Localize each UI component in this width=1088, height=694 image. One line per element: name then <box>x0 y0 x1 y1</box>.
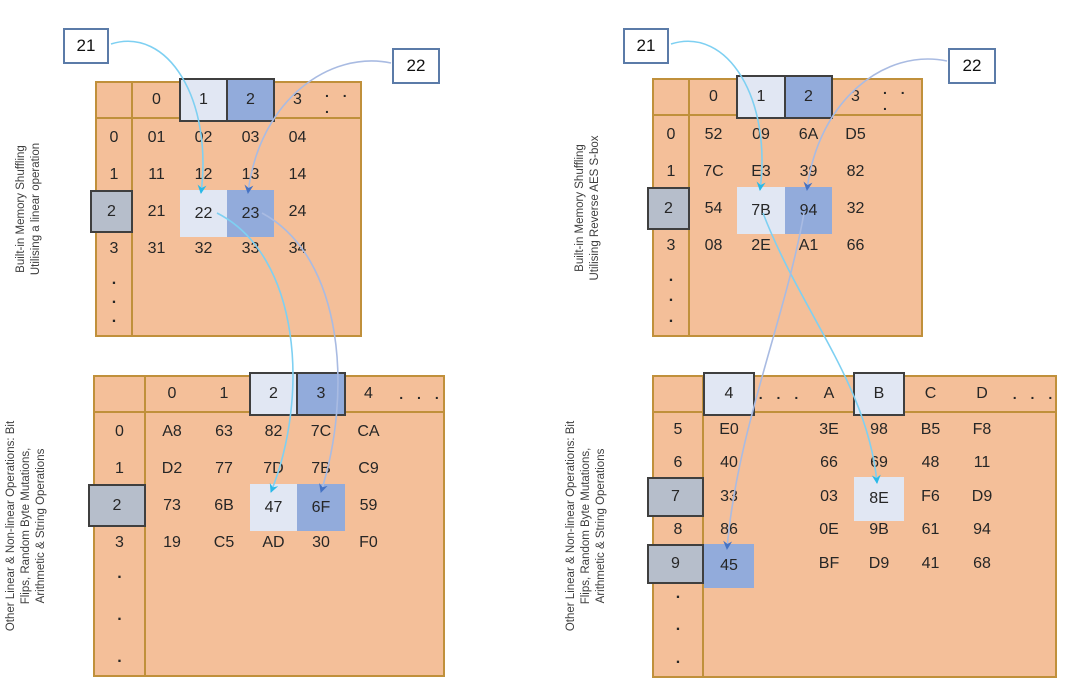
data-cell: D5 <box>832 116 879 153</box>
table-row: 0A863827CCA <box>95 413 443 450</box>
data-cell-text: 32 <box>195 240 213 258</box>
highlighted-col-header: 2 <box>249 372 298 416</box>
ellipsis-dot: . <box>112 296 116 302</box>
data-cell: 52 <box>690 116 737 153</box>
data-cell <box>392 487 447 524</box>
data-cell: 6A <box>785 116 832 153</box>
col-header-2: 2 <box>227 83 274 117</box>
table-row: 052096AD5 <box>654 116 921 153</box>
data-cell: 66 <box>832 227 879 264</box>
row-label-3: 3 <box>95 524 146 561</box>
data-cell: D9 <box>957 480 1007 514</box>
header-row: 01234. . . <box>95 377 443 413</box>
data-cell-text: 48 <box>922 454 940 472</box>
ellipsis-column: ... <box>95 561 146 675</box>
data-cell: D2 <box>146 450 198 487</box>
caption-line: Utilising Reverse AES S-box <box>588 135 603 280</box>
data-cell: E0 <box>704 413 754 447</box>
highlighted-col-header: 2 <box>784 75 833 119</box>
row-label-text: 5 <box>674 421 683 439</box>
callout-box-21: 21 <box>63 28 109 64</box>
data-cell: F0 <box>345 524 392 561</box>
data-cell: 73 <box>146 487 198 524</box>
data-cell: 22 <box>180 193 227 230</box>
data-cell: 7B <box>297 450 345 487</box>
row-label-1: 1 <box>95 450 146 487</box>
highlighted-col-header: B <box>853 372 905 416</box>
row-label-0: 0 <box>654 116 690 153</box>
data-cell: A8 <box>146 413 198 450</box>
col-header-label: A <box>824 385 835 403</box>
data-cell: 94 <box>785 190 832 227</box>
bottom-table-reverse-aes-sbox: 4. . .ABCD. . .5E03E98B5F864066694811733… <box>652 375 1057 678</box>
ellipsis-dot: . <box>669 294 673 300</box>
col-header-label: . . . <box>879 81 925 113</box>
highlighted-row-label: 7 <box>647 477 704 517</box>
row-label-text: 3 <box>667 237 676 255</box>
data-cell-text: 19 <box>163 534 181 552</box>
col-header-label: 4 <box>364 385 373 403</box>
caption-line: Flips, Random Byte Mutations, <box>579 421 594 631</box>
data-cell <box>321 193 364 230</box>
caption-line: Other Linear & Non-linear Operations: Bi… <box>4 421 19 631</box>
row-label-1: 1 <box>654 153 690 190</box>
row-label-0: 0 <box>95 413 146 450</box>
data-cell <box>321 230 364 267</box>
data-cell-text: F6 <box>921 488 940 506</box>
data-cell: 82 <box>250 413 297 450</box>
col-header-3: 3 <box>274 83 321 117</box>
col-header-B: B <box>854 377 904 411</box>
data-cell: BF <box>804 547 854 581</box>
data-cell-text: 02 <box>195 129 213 147</box>
data-cell-text: D5 <box>845 126 865 144</box>
data-cell-text: 7C <box>311 423 331 441</box>
data-cell: 7C <box>690 153 737 190</box>
callout-box-22: 22 <box>392 48 440 84</box>
data-cell: 7B <box>737 190 785 227</box>
row-label-2: 2 <box>95 487 146 524</box>
data-cell-text: 01 <box>148 129 166 147</box>
data-cell: 02 <box>180 119 227 156</box>
ellipsis-rows: ... <box>654 581 1055 677</box>
highlighted-data-cell: 8E <box>854 477 904 521</box>
data-cell-text: F8 <box>973 421 992 439</box>
table-row: 64066694811 <box>654 447 1055 481</box>
col-header-0: 0 <box>146 377 198 411</box>
data-cell <box>879 227 925 264</box>
data-cell-text: 31 <box>148 240 166 258</box>
data-cell-text: 82 <box>265 423 283 441</box>
callout-box-21: 21 <box>623 28 669 64</box>
col-header-label: 0 <box>152 91 161 109</box>
data-cell-text: 52 <box>705 126 723 144</box>
col-header-0: 0 <box>690 80 737 114</box>
data-cell-text: 7C <box>703 163 723 181</box>
data-cell-text: 59 <box>360 497 378 515</box>
data-cell-text: 66 <box>820 454 838 472</box>
highlighted-data-cell: 22 <box>180 190 227 237</box>
data-cell: 23 <box>227 193 274 230</box>
col-header-label: 0 <box>168 385 177 403</box>
data-cell-text: 82 <box>847 163 865 181</box>
data-cell: F8 <box>957 413 1007 447</box>
data-cell: 98 <box>854 413 904 447</box>
row-label-2: 2 <box>654 190 690 227</box>
data-cell <box>1007 413 1059 447</box>
data-cell-text: D9 <box>869 555 889 573</box>
ellipsis-dot: . <box>676 591 680 597</box>
col-header-ellipsis: . . . <box>879 80 925 114</box>
highlighted-data-cell: 47 <box>250 484 297 531</box>
data-cell-text: F0 <box>359 534 378 552</box>
data-cell: 59 <box>345 487 392 524</box>
data-cell: 54 <box>690 190 737 227</box>
data-cell: B5 <box>904 413 957 447</box>
caption-line: Utilising a linear operation <box>29 143 44 275</box>
data-cell <box>1007 547 1059 581</box>
data-cell <box>879 153 925 190</box>
data-cell-text: 98 <box>870 421 888 439</box>
data-cell: 04 <box>274 119 321 156</box>
data-cell-text: 12 <box>195 166 213 184</box>
data-cell: 19 <box>146 524 198 561</box>
data-cell: 77 <box>198 450 250 487</box>
header-row: 4. . .ABCD. . . <box>654 377 1055 413</box>
data-cell: E3 <box>737 153 785 190</box>
table-row: 17CE33982 <box>654 153 921 190</box>
data-cell: 41 <box>904 547 957 581</box>
highlighted-data-cell: 45 <box>704 544 754 588</box>
data-cell: 11 <box>133 156 180 193</box>
data-cell: 47 <box>250 487 297 524</box>
data-cell-text: C9 <box>358 460 378 478</box>
data-cell-text: 11 <box>148 166 165 184</box>
data-cell-text: C5 <box>214 534 234 552</box>
data-cell-text: D9 <box>972 488 992 506</box>
data-cell: 03 <box>804 480 854 514</box>
row-label-text: 1 <box>667 163 676 181</box>
data-cell-text: 21 <box>148 203 166 221</box>
data-cell-text: A8 <box>162 423 182 441</box>
col-header-2: 2 <box>250 377 297 411</box>
highlighted-col-header: 1 <box>179 78 228 122</box>
row-label-1: 1 <box>97 156 133 193</box>
row-label-text: 1 <box>115 460 124 478</box>
data-cell-text: 34 <box>289 240 307 258</box>
data-cell-text: 9B <box>869 521 889 539</box>
data-cell: 7D <box>250 450 297 487</box>
data-cell: 68 <box>957 547 1007 581</box>
data-cell-text: 03 <box>820 488 838 506</box>
col-header-C: C <box>904 377 957 411</box>
data-cell: 08 <box>690 227 737 264</box>
row-label-5: 5 <box>654 413 704 447</box>
col-header-D: D <box>957 377 1007 411</box>
data-cell-text: AD <box>262 534 284 552</box>
data-cell: C5 <box>198 524 250 561</box>
data-cell: 82 <box>832 153 879 190</box>
data-cell: 86 <box>704 514 754 548</box>
data-cell: 01 <box>133 119 180 156</box>
data-cell-text: 09 <box>752 126 770 144</box>
data-cell <box>754 547 804 581</box>
data-cell: CA <box>345 413 392 450</box>
ellipsis-dot: . <box>676 623 680 629</box>
data-cell <box>321 156 364 193</box>
callout-box-22: 22 <box>948 48 996 84</box>
data-cell-text: BF <box>819 555 839 573</box>
ellipsis-column: ... <box>97 267 133 335</box>
corner-cell <box>654 80 690 114</box>
bottom-table-linear-operation: 01234. . .0A863827CCA1D2777D7BC92736B476… <box>93 375 445 677</box>
caption-line: Arithmetic & String Operations <box>35 421 50 631</box>
table-row: 2736B476F59 <box>95 487 443 524</box>
data-cell: 21 <box>133 193 180 230</box>
caption-linear-operation-bottom: Other Linear & Non-linear Operations: Bi… <box>4 421 50 631</box>
row-label-text: 1 <box>110 166 119 184</box>
data-cell: 13 <box>227 156 274 193</box>
data-cell <box>1007 480 1059 514</box>
col-header-label: . . . <box>321 84 364 116</box>
col-header-label: . . . <box>755 386 803 402</box>
row-label-text: 0 <box>115 423 124 441</box>
data-cell-text: 03 <box>242 129 260 147</box>
data-cell: 8E <box>854 480 904 514</box>
highlighted-row-label: 2 <box>90 190 133 233</box>
highlighted-col-header: 4 <box>703 372 755 416</box>
highlighted-row-label: 9 <box>647 544 704 584</box>
highlighted-col-header: 1 <box>736 75 786 119</box>
data-cell-text: 6A <box>799 126 819 144</box>
data-cell: 48 <box>904 447 957 481</box>
col-header-label: 3 <box>851 88 860 106</box>
header-row: 0123. . . <box>654 80 921 116</box>
col-header-3: 3 <box>832 80 879 114</box>
row-label-text: 8 <box>674 521 683 539</box>
top-table-linear-operation: 0123. . .0010203041111213142212223243313… <box>95 81 362 337</box>
highlighted-data-cell: 7B <box>737 187 785 234</box>
data-cell: 12 <box>180 156 227 193</box>
data-cell <box>392 450 447 487</box>
table-row: 001020304 <box>97 119 360 156</box>
table-row: 111121314 <box>97 156 360 193</box>
data-cell-text: 33 <box>720 488 738 506</box>
data-cell-text: 24 <box>289 203 307 221</box>
data-cell: F6 <box>904 480 957 514</box>
data-cell: 32 <box>832 190 879 227</box>
table-row: 1D2777D7BC9 <box>95 450 443 487</box>
data-cell: 3E <box>804 413 854 447</box>
highlighted-row-label: 2 <box>88 484 146 527</box>
memory-shuffling-diagram: 2122Built-in Memory ShufflingUtilising a… <box>0 0 1088 694</box>
col-header-1: 1 <box>198 377 250 411</box>
data-cell-text: E3 <box>751 163 771 181</box>
col-header-1: 1 <box>737 80 785 114</box>
caption-reverse-aes-sbox-bottom: Other Linear & Non-linear Operations: Bi… <box>564 421 610 631</box>
data-cell <box>1007 447 1059 481</box>
ellipsis-rows: ... <box>95 561 443 675</box>
data-cell: 0E <box>804 514 854 548</box>
data-cell: 40 <box>704 447 754 481</box>
row-label-text: 6 <box>674 454 683 472</box>
data-cell: 11 <box>957 447 1007 481</box>
ellipsis-rows: ... <box>654 264 921 335</box>
data-cell-text: B5 <box>921 421 941 439</box>
row-label-7: 7 <box>654 480 704 514</box>
ellipsis-dot: . <box>117 655 121 661</box>
col-header-label: . . . <box>1009 386 1057 402</box>
data-cell-text: 7B <box>311 460 331 478</box>
data-cell: 39 <box>785 153 832 190</box>
col-header-ellipsis: . . . <box>1007 377 1059 411</box>
ellipsis-column: ... <box>654 264 690 335</box>
header-row: 0123. . . <box>97 83 360 119</box>
col-header-label: C <box>925 385 937 403</box>
col-header-ellipsis: . . . <box>321 83 364 117</box>
corner-cell <box>95 377 146 411</box>
data-cell-text: 7D <box>263 460 283 478</box>
data-cell <box>754 413 804 447</box>
caption-line: Built-in Memory Shuffling <box>573 135 588 280</box>
data-cell-text: 94 <box>973 521 991 539</box>
data-cell: 66 <box>804 447 854 481</box>
col-header-1: 1 <box>180 83 227 117</box>
row-label-0: 0 <box>97 119 133 156</box>
data-cell: 69 <box>854 447 904 481</box>
col-header-0: 0 <box>133 83 180 117</box>
table-row: 5E03E98B5F8 <box>654 413 1055 447</box>
highlighted-data-cell: 94 <box>785 187 832 234</box>
data-cell: 03 <box>227 119 274 156</box>
ellipsis-dot: . <box>676 656 680 662</box>
row-label-3: 3 <box>97 230 133 267</box>
data-cell-text: 39 <box>800 163 818 181</box>
col-header-label: D <box>976 385 988 403</box>
data-cell-text: 61 <box>922 521 940 539</box>
top-table-reverse-aes-sbox: 0123. . .052096AD517CE339822547B94323082… <box>652 78 923 337</box>
data-cell-text: CA <box>357 423 379 441</box>
data-cell: 34 <box>274 230 321 267</box>
data-cell <box>392 413 447 450</box>
ellipsis-dot: . <box>117 613 121 619</box>
row-label-text: 3 <box>115 534 124 552</box>
col-header-A: A <box>804 377 854 411</box>
row-label-text: 3 <box>110 240 119 258</box>
data-cell: C9 <box>345 450 392 487</box>
data-cell-text: 73 <box>163 497 181 515</box>
data-cell-text: 77 <box>215 460 233 478</box>
data-cell <box>1007 514 1059 548</box>
ellipsis-dot: . <box>669 274 673 280</box>
data-cell-text: 66 <box>847 237 865 255</box>
caption-linear-operation-top: Built-in Memory ShufflingUtilising a lin… <box>14 143 44 275</box>
data-cell-text: 6B <box>214 497 234 515</box>
ellipsis-dot: . <box>669 315 673 321</box>
data-cell: 6B <box>198 487 250 524</box>
data-cell <box>879 116 925 153</box>
col-header-ellipsis: . . . <box>754 377 804 411</box>
caption-line: Flips, Random Byte Mutations, <box>19 421 34 631</box>
data-cell <box>754 447 804 481</box>
data-cell: D9 <box>854 547 904 581</box>
row-label-3: 3 <box>654 227 690 264</box>
table-row: 221222324 <box>97 193 360 230</box>
col-header-label: 0 <box>709 88 718 106</box>
ellipsis-dot: . <box>112 277 116 283</box>
caption-line: Other Linear & Non-linear Operations: Bi… <box>564 421 579 631</box>
data-cell: 63 <box>198 413 250 450</box>
data-cell-text: 11 <box>974 454 991 472</box>
data-cell-text: D2 <box>162 460 182 478</box>
col-header-3: 3 <box>297 377 345 411</box>
highlighted-data-cell: 6F <box>297 484 345 531</box>
data-cell <box>321 119 364 156</box>
highlighted-col-header: 2 <box>226 78 275 122</box>
data-cell: 94 <box>957 514 1007 548</box>
col-header-2: 2 <box>785 80 832 114</box>
highlighted-row-label: 2 <box>647 187 690 230</box>
data-cell-text: 13 <box>242 166 260 184</box>
col-header-label: 1 <box>220 385 229 403</box>
data-cell: 7C <box>297 413 345 450</box>
col-header-label: . . . <box>395 386 443 402</box>
row-label-text: 0 <box>667 126 676 144</box>
ellipsis-rows: ... <box>97 267 360 335</box>
data-cell: 24 <box>274 193 321 230</box>
row-label-9: 9 <box>654 547 704 581</box>
ellipsis-dot: . <box>117 571 121 577</box>
data-cell <box>754 514 804 548</box>
data-cell-text: 0E <box>819 521 839 539</box>
ellipsis-dot: . <box>112 315 116 321</box>
ellipsis-column: ... <box>654 581 704 677</box>
table-row: 945BFD94168 <box>654 547 1055 581</box>
data-cell-text: 40 <box>720 454 738 472</box>
row-label-8: 8 <box>654 514 704 548</box>
row-label-2: 2 <box>97 193 133 230</box>
data-cell-text: 54 <box>705 200 723 218</box>
data-cell: 61 <box>904 514 957 548</box>
data-cell: 45 <box>704 547 754 581</box>
data-cell-text: 69 <box>870 454 888 472</box>
data-cell-text: 32 <box>847 200 865 218</box>
corner-cell <box>654 377 704 411</box>
data-cell-text: 04 <box>289 129 307 147</box>
caption-reverse-aes-sbox-top: Built-in Memory ShufflingUtilising Rever… <box>573 135 603 280</box>
data-cell-text: 86 <box>720 521 738 539</box>
data-cell: 31 <box>133 230 180 267</box>
data-cell-text: 33 <box>242 240 260 258</box>
data-cell-text: 14 <box>289 166 307 184</box>
data-cell-text: 30 <box>312 534 330 552</box>
data-cell: 09 <box>737 116 785 153</box>
highlighted-col-header: 3 <box>296 372 346 416</box>
row-label-text: 0 <box>110 129 119 147</box>
col-header-label: 3 <box>293 91 302 109</box>
data-cell-text: 2E <box>751 237 771 255</box>
data-cell-text: E0 <box>719 421 739 439</box>
table-row: 733038EF6D9 <box>654 480 1055 514</box>
data-cell-text: 41 <box>922 555 940 573</box>
corner-cell <box>97 83 133 117</box>
col-header-4: 4 <box>345 377 392 411</box>
caption-line: Arithmetic & String Operations <box>595 421 610 631</box>
col-header-ellipsis: . . . <box>392 377 447 411</box>
data-cell-text: 08 <box>705 237 723 255</box>
data-cell-text: 63 <box>215 423 233 441</box>
data-cell-text: 68 <box>973 555 991 573</box>
